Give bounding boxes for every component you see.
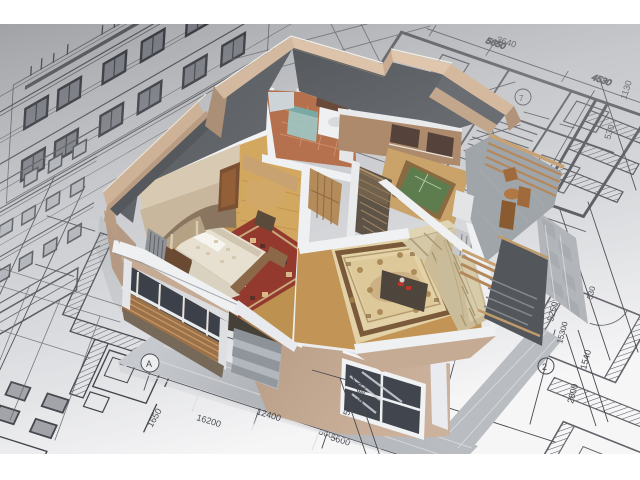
svg-text:2: 2 xyxy=(542,362,547,372)
svg-text:A: A xyxy=(146,359,152,369)
